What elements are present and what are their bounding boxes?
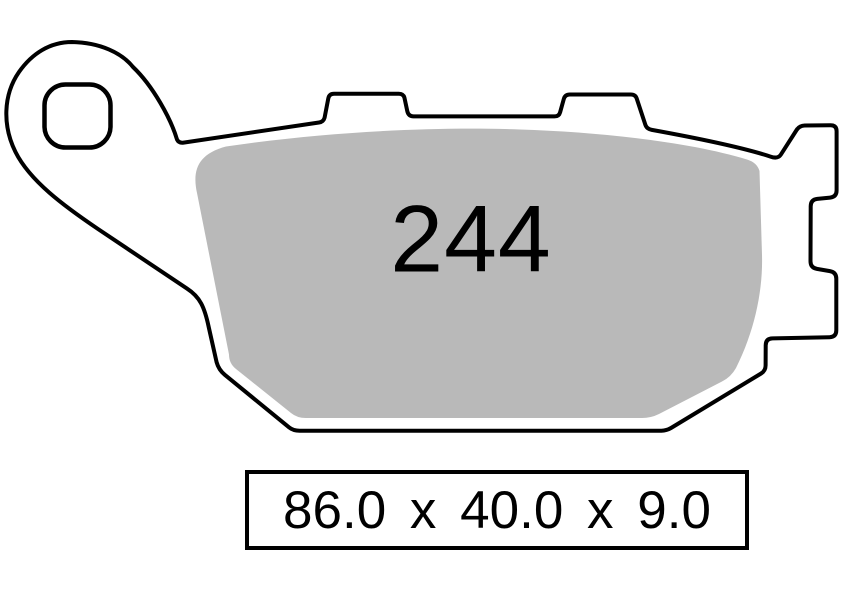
pad-number: 244 — [390, 193, 552, 288]
brake-pad-diagram: 244 86.0 x 40.0 x 9.0 — [0, 0, 842, 595]
dimensions-box: 86.0 x 40.0 x 9.0 — [245, 470, 749, 550]
dimensions-text: 86.0 x 40.0 x 9.0 — [283, 484, 711, 537]
mounting-hole — [45, 85, 111, 148]
